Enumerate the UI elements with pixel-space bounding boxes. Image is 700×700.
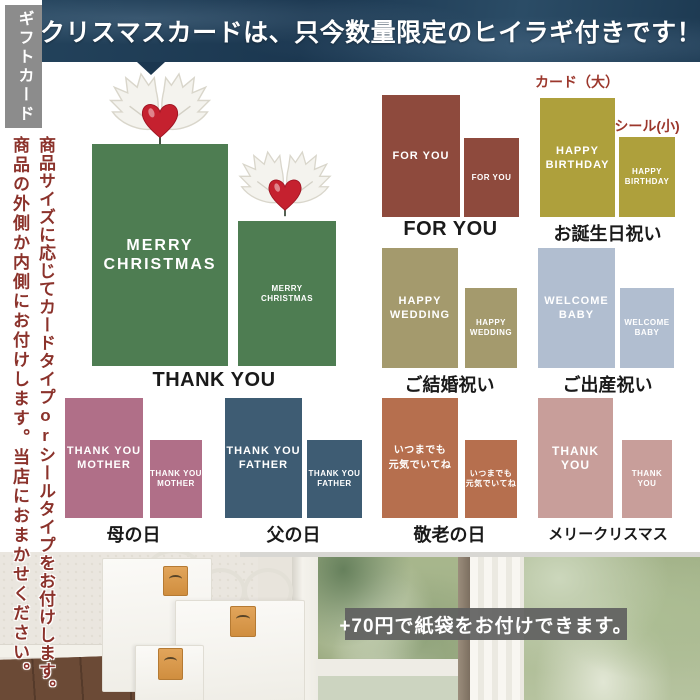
section-label-mother: 母の日 bbox=[62, 521, 205, 547]
card-text: いつまでも bbox=[394, 443, 447, 458]
card-text: MERRY bbox=[126, 236, 193, 255]
card-large-merry-christmas: THANK YOU bbox=[538, 398, 613, 518]
card-text: HAPPY bbox=[556, 144, 599, 158]
card-text: HAPPY bbox=[476, 318, 506, 328]
card-text: WEDDING bbox=[390, 308, 450, 322]
card-large-father: THANK YOUFATHER bbox=[225, 398, 302, 518]
card-text: MOTHER bbox=[157, 479, 195, 489]
paper-bag-tag bbox=[163, 566, 188, 596]
sidebar-tab-gift-card: ギフトカード bbox=[5, 5, 42, 128]
card-text: WELCOME bbox=[544, 294, 608, 308]
sidebar-tab-label: ギフトカード bbox=[12, 10, 36, 124]
banner-text: クリスマスカードは、只今数量限定のヒイラギ付きです！ bbox=[40, 13, 700, 49]
card-text: WELCOME bbox=[624, 318, 669, 328]
card-text: FOR YOU bbox=[393, 149, 450, 163]
card-text: CHRISTMAS bbox=[261, 294, 313, 304]
card-text: THANK YOU bbox=[226, 444, 300, 458]
section-label-baby: ご出産祝い bbox=[525, 371, 690, 397]
paper-bag-tag bbox=[158, 648, 183, 680]
card-large-respect-for-aged: いつまでも元気でいてね bbox=[382, 398, 458, 518]
card-text: WEDDING bbox=[470, 328, 512, 338]
paper-bag-price-note: +70円で紙袋をお付けできます。 bbox=[345, 608, 627, 640]
section-label-merry-christmas: メリークリスマス bbox=[523, 523, 693, 544]
card-small-for-you: FOR YOU bbox=[464, 138, 519, 217]
card-small-respect-for-aged: いつまでも元気でいてね bbox=[465, 440, 517, 518]
card-text: いつまでも bbox=[470, 469, 513, 479]
card-small-wedding: HAPPYWEDDING bbox=[465, 288, 517, 368]
card-large-christmas: MERRYCHRISTMAS bbox=[92, 144, 228, 366]
section-label-respect-for-aged: 敬老の日 bbox=[372, 521, 527, 547]
card-large-wedding: HAPPYWEDDING bbox=[382, 248, 458, 368]
paper-bag-photo: +70円で紙袋をお付けできます。 bbox=[0, 552, 700, 700]
holly-decoration-icon bbox=[233, 148, 337, 222]
card-text: BIRTHDAY bbox=[546, 158, 610, 172]
paper-bag-tag bbox=[230, 606, 256, 637]
card-text: THANK YOU bbox=[150, 469, 202, 479]
card-text: 元気でいてね bbox=[389, 458, 452, 473]
section-label-birthday: お誕生日祝い bbox=[525, 220, 690, 246]
card-large-for-you: FOR YOU bbox=[382, 95, 460, 217]
card-large-mother: THANK YOUMOTHER bbox=[65, 398, 143, 518]
card-text: BABY bbox=[559, 308, 594, 322]
card-text: THANK YOU bbox=[309, 469, 361, 479]
sidebar-notes: 商品サイズに応じてカードタイプorシールタイプをお付けします。 商品の外側か内側… bbox=[2, 136, 58, 700]
card-text: BIRTHDAY bbox=[625, 177, 670, 187]
holly-decoration-icon bbox=[103, 70, 217, 150]
photo-window-undersill bbox=[318, 676, 458, 700]
card-text: MOTHER bbox=[77, 458, 131, 472]
card-small-baby: WELCOMEBABY bbox=[620, 288, 674, 368]
card-text: THANK YOU bbox=[538, 444, 613, 472]
sidebar-note-1: 商品サイズに応じてカードタイプorシールタイプをお付けします。 bbox=[32, 136, 58, 700]
section-label-christmas: THANK YOU bbox=[92, 369, 336, 392]
card-small-birthday: HAPPYBIRTHDAY bbox=[619, 137, 675, 217]
gift-card-promo-image: クリスマスカードは、只今数量限定のヒイラギ付きです！ ギフトカード 商品サイズに… bbox=[0, 0, 700, 700]
photo-top-edge bbox=[240, 552, 700, 557]
card-large-birthday: HAPPYBIRTHDAY bbox=[540, 98, 615, 217]
photo-window-sill bbox=[318, 659, 458, 676]
legend-card-large: カード（大） bbox=[534, 72, 620, 92]
card-text: 元気でいてね bbox=[466, 479, 517, 489]
card-large-baby: WELCOMEBABY bbox=[538, 248, 615, 368]
card-text: THANK YOU bbox=[67, 444, 141, 458]
card-text: BABY bbox=[635, 328, 660, 338]
card-text: FOR YOU bbox=[472, 173, 512, 183]
section-label-father: 父の日 bbox=[222, 521, 365, 547]
paper-bag-price-text: +70円で紙袋をお付けできます。 bbox=[339, 611, 632, 638]
section-label-wedding: ご結婚祝い bbox=[372, 371, 527, 397]
card-text: FATHER bbox=[239, 458, 288, 472]
sidebar-note-2: 商品の外側か内側にお付けします。当店におまかせください。 bbox=[6, 136, 32, 700]
card-text: THANK YOU bbox=[622, 469, 672, 489]
card-text: CHRISTMAS bbox=[103, 255, 216, 274]
card-text: HAPPY bbox=[399, 294, 442, 308]
card-small-christmas: MERRYCHRISTMAS bbox=[238, 221, 336, 366]
card-text: MERRY bbox=[271, 284, 302, 294]
card-small-mother: THANK YOUMOTHER bbox=[150, 440, 202, 518]
card-text: HAPPY bbox=[632, 167, 662, 177]
card-small-merry-christmas: THANK YOU bbox=[622, 440, 672, 518]
section-label-for-you: FOR YOU bbox=[378, 218, 523, 241]
card-text: FATHER bbox=[317, 479, 351, 489]
legend-seal-small: シール(小) bbox=[606, 116, 688, 136]
banner: クリスマスカードは、只今数量限定のヒイラギ付きです！ bbox=[42, 0, 700, 62]
card-small-father: THANK YOUFATHER bbox=[307, 440, 362, 518]
